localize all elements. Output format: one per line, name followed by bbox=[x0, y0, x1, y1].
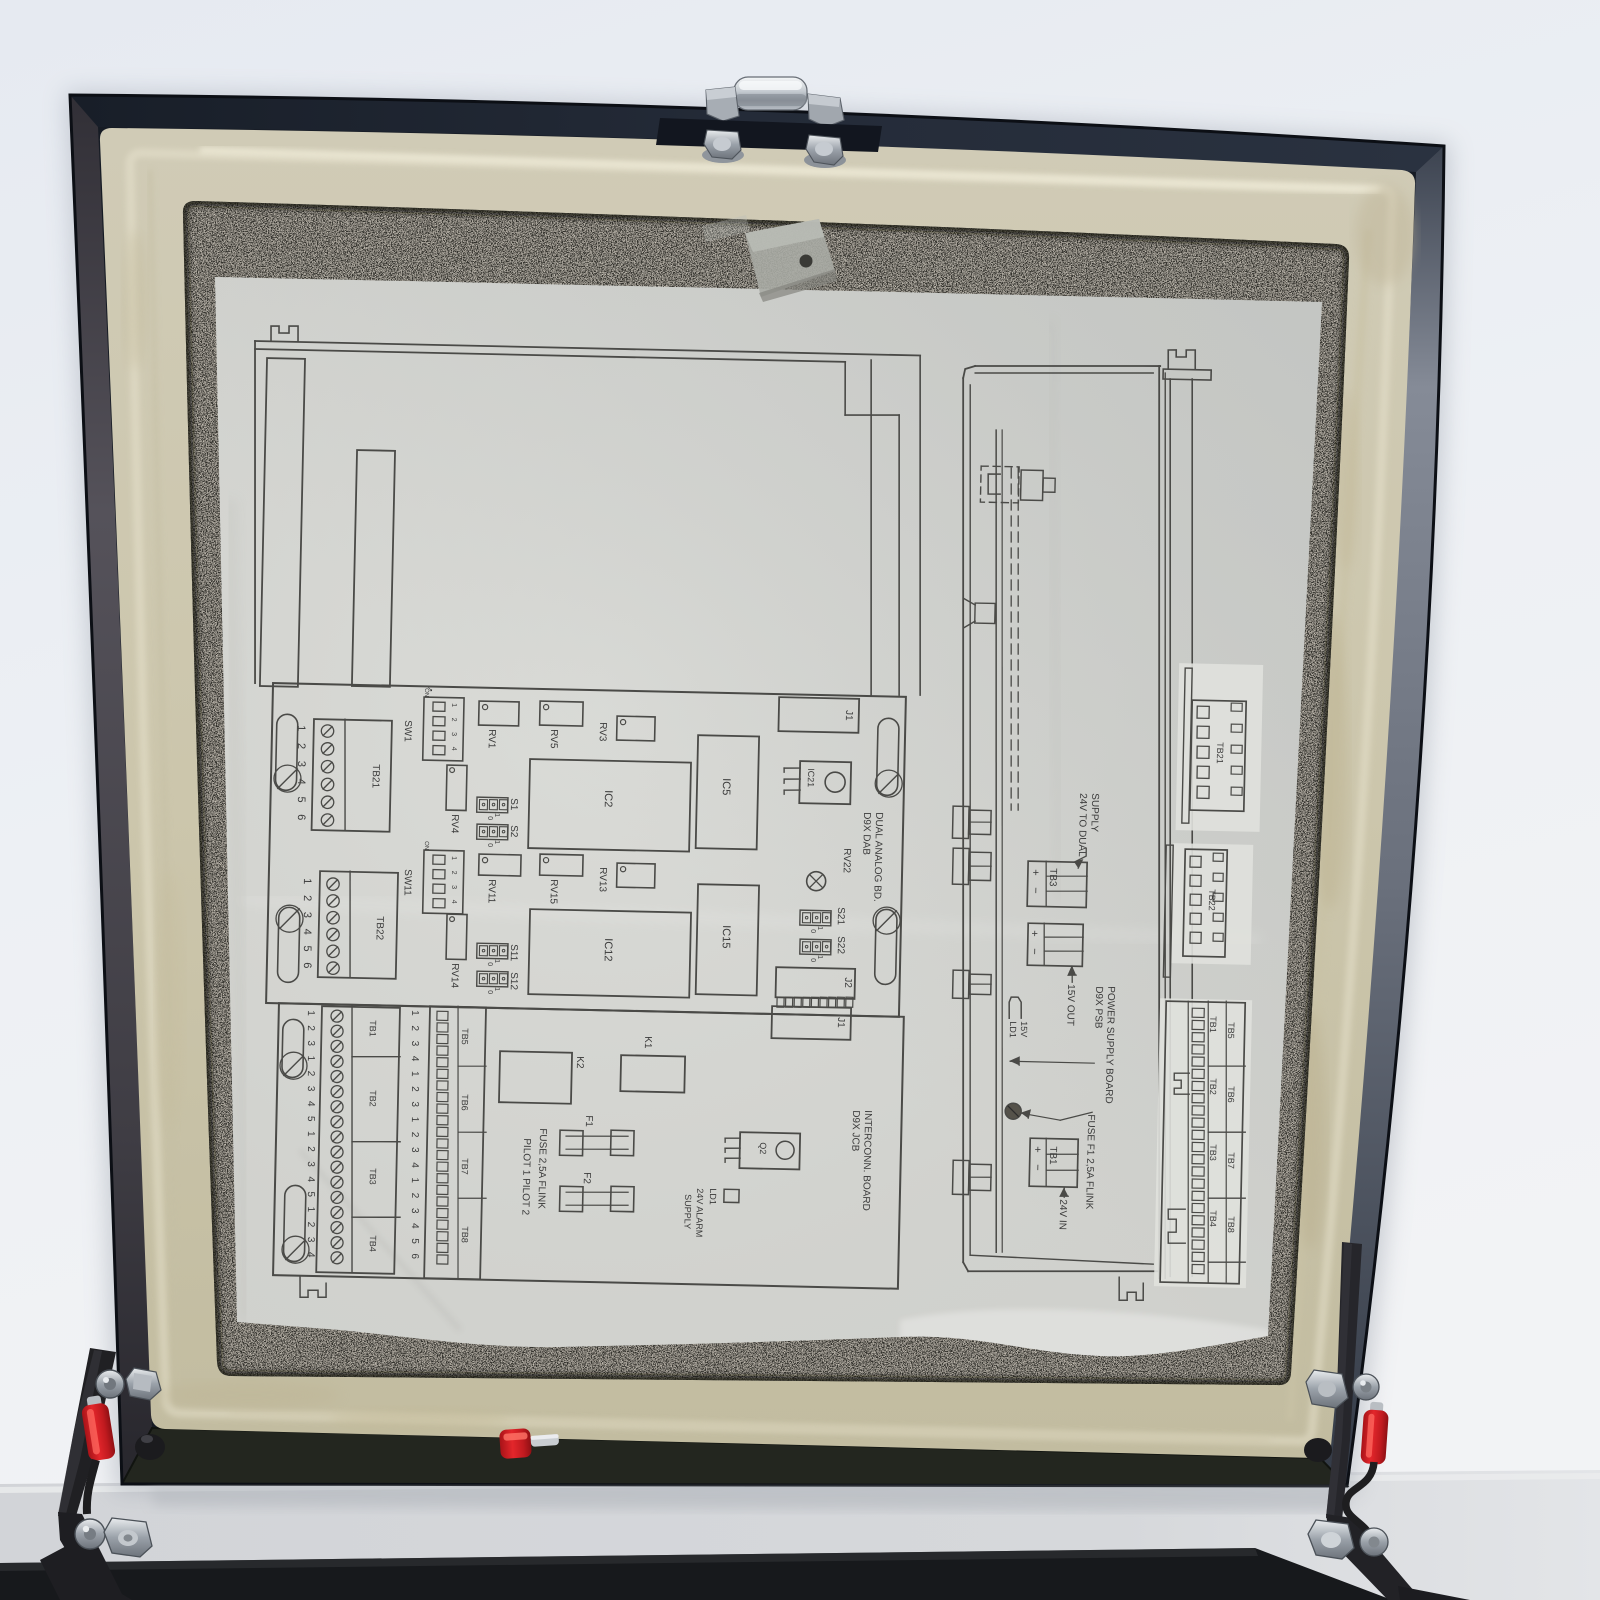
svg-text:−: − bbox=[1031, 1164, 1043, 1171]
svg-text:TB2: TB2 bbox=[1208, 1078, 1218, 1095]
svg-text:J1: J1 bbox=[843, 710, 854, 721]
svg-text:1: 1 bbox=[409, 1177, 420, 1183]
svg-text:SW11: SW11 bbox=[401, 869, 413, 896]
svg-text:TB6: TB6 bbox=[1226, 1086, 1236, 1103]
svg-text:TB21: TB21 bbox=[1215, 742, 1225, 764]
svg-text:F1: F1 bbox=[583, 1115, 594, 1127]
svg-text:3: 3 bbox=[409, 1147, 420, 1153]
svg-text:SUPPLY: SUPPLY bbox=[682, 1194, 693, 1229]
svg-text:TB1: TB1 bbox=[368, 1020, 378, 1037]
svg-text:IC2: IC2 bbox=[602, 790, 614, 807]
svg-text:2: 2 bbox=[305, 1146, 316, 1152]
svg-text:J2: J2 bbox=[842, 977, 853, 988]
svg-text:Q2: Q2 bbox=[758, 1142, 768, 1154]
svg-text:TB7: TB7 bbox=[1226, 1152, 1236, 1169]
svg-text:5: 5 bbox=[409, 1238, 420, 1244]
svg-text:0: 0 bbox=[486, 962, 493, 966]
svg-text:+: + bbox=[1029, 869, 1041, 876]
svg-text:24V ALARM: 24V ALARM bbox=[694, 1188, 705, 1237]
svg-text:TB5: TB5 bbox=[460, 1028, 470, 1045]
svg-text:S1: S1 bbox=[508, 798, 519, 811]
svg-text:2: 2 bbox=[305, 1222, 316, 1228]
svg-text:24V IN: 24V IN bbox=[1057, 1199, 1069, 1230]
svg-text:TB22: TB22 bbox=[373, 916, 385, 941]
svg-text:RV4: RV4 bbox=[449, 814, 460, 834]
svg-text:1: 1 bbox=[409, 1010, 420, 1016]
svg-text:4: 4 bbox=[409, 1056, 420, 1062]
svg-text:6: 6 bbox=[295, 814, 307, 820]
svg-text:FUSE 2,5A FLINK: FUSE 2,5A FLINK bbox=[535, 1128, 548, 1209]
svg-text:6: 6 bbox=[301, 962, 313, 968]
svg-text:RV3: RV3 bbox=[597, 722, 608, 742]
svg-text:2: 2 bbox=[305, 1025, 316, 1031]
svg-text:3: 3 bbox=[409, 1041, 420, 1047]
svg-text:RV5: RV5 bbox=[548, 729, 559, 749]
svg-text:1: 1 bbox=[295, 725, 307, 731]
svg-text:IC5: IC5 bbox=[720, 778, 732, 795]
svg-text:0: 0 bbox=[809, 929, 816, 933]
svg-text:J1: J1 bbox=[835, 1017, 846, 1028]
svg-text:TB1: TB1 bbox=[1208, 1016, 1218, 1033]
svg-text:IC12: IC12 bbox=[602, 938, 615, 962]
svg-text:5: 5 bbox=[305, 1116, 316, 1122]
svg-text:4: 4 bbox=[409, 1223, 420, 1229]
svg-text:5: 5 bbox=[301, 945, 313, 951]
svg-text:LD1: LD1 bbox=[1008, 1021, 1018, 1038]
svg-text:PILOT 1 PILOT 2: PILOT 1 PILOT 2 bbox=[519, 1138, 532, 1216]
svg-text:RV14: RV14 bbox=[449, 963, 461, 989]
svg-text:S12: S12 bbox=[508, 972, 519, 990]
svg-text:TB7: TB7 bbox=[460, 1158, 470, 1175]
svg-text:LD1: LD1 bbox=[708, 1188, 718, 1205]
svg-text:15V OUT: 15V OUT bbox=[1064, 984, 1076, 1026]
svg-text:RV22: RV22 bbox=[841, 848, 853, 874]
svg-text:DUAL ANALOG BD.: DUAL ANALOG BD. bbox=[871, 812, 884, 902]
svg-text:K1: K1 bbox=[642, 1036, 653, 1049]
svg-text:RV1: RV1 bbox=[486, 729, 497, 749]
svg-text:1: 1 bbox=[450, 856, 457, 860]
svg-text:4: 4 bbox=[301, 929, 313, 935]
svg-text:RV11: RV11 bbox=[485, 879, 497, 904]
svg-text:2: 2 bbox=[301, 895, 313, 901]
svg-text:−: − bbox=[1028, 948, 1040, 955]
svg-text:0: 0 bbox=[486, 816, 493, 820]
svg-text:0: 0 bbox=[486, 843, 493, 847]
svg-text:1: 1 bbox=[305, 1206, 316, 1212]
svg-text:IC15: IC15 bbox=[720, 925, 733, 949]
svg-text:TB2: TB2 bbox=[368, 1090, 378, 1107]
svg-text:RV15: RV15 bbox=[547, 879, 559, 905]
svg-text:D9X PSB: D9X PSB bbox=[1092, 986, 1104, 1029]
svg-text:1: 1 bbox=[409, 1117, 420, 1123]
svg-text:3: 3 bbox=[450, 732, 457, 736]
svg-text:TB21: TB21 bbox=[369, 764, 381, 789]
svg-text:TB8: TB8 bbox=[460, 1226, 470, 1243]
svg-text:1: 1 bbox=[816, 926, 823, 930]
svg-text:TB22: TB22 bbox=[1207, 889, 1217, 911]
svg-text:2: 2 bbox=[409, 1025, 420, 1031]
svg-text:2: 2 bbox=[409, 1193, 420, 1199]
svg-text:ON: ON bbox=[423, 841, 429, 850]
svg-text:5: 5 bbox=[295, 796, 307, 802]
svg-text:ON: ON bbox=[423, 688, 429, 697]
svg-text:S22: S22 bbox=[835, 936, 846, 954]
svg-text:1: 1 bbox=[305, 1131, 316, 1137]
svg-text:2: 2 bbox=[450, 718, 457, 722]
svg-text:IC21: IC21 bbox=[806, 768, 816, 787]
svg-text:RV13: RV13 bbox=[597, 867, 609, 893]
svg-text:3: 3 bbox=[305, 1086, 316, 1092]
svg-text:S2: S2 bbox=[508, 825, 519, 838]
svg-text:TB4: TB4 bbox=[1208, 1210, 1218, 1227]
svg-text:S21: S21 bbox=[835, 907, 846, 925]
svg-text:4: 4 bbox=[305, 1101, 316, 1107]
svg-text:6: 6 bbox=[409, 1253, 420, 1259]
svg-text:4: 4 bbox=[305, 1176, 316, 1182]
svg-text:TB1: TB1 bbox=[1047, 1146, 1058, 1165]
svg-text:3: 3 bbox=[305, 1040, 316, 1046]
svg-text:2: 2 bbox=[305, 1071, 316, 1077]
svg-text:1: 1 bbox=[301, 878, 313, 884]
svg-text:D9X DAB: D9X DAB bbox=[860, 812, 872, 855]
svg-text:+: + bbox=[1028, 930, 1040, 937]
svg-text:K2: K2 bbox=[574, 1056, 585, 1069]
svg-text:2: 2 bbox=[409, 1086, 420, 1092]
svg-text:1: 1 bbox=[450, 703, 457, 707]
svg-text:3: 3 bbox=[409, 1208, 420, 1214]
svg-text:3: 3 bbox=[305, 1161, 316, 1167]
svg-text:S11: S11 bbox=[508, 944, 519, 962]
svg-text:TB8: TB8 bbox=[1226, 1216, 1236, 1233]
svg-text:2: 2 bbox=[450, 871, 457, 875]
svg-text:4: 4 bbox=[409, 1162, 420, 1168]
svg-text:SUPPLY: SUPPLY bbox=[1088, 793, 1100, 832]
svg-text:−: − bbox=[1029, 887, 1041, 894]
svg-text:3: 3 bbox=[450, 885, 457, 889]
svg-text:TB3: TB3 bbox=[1047, 868, 1058, 887]
svg-text:SW1: SW1 bbox=[402, 720, 413, 742]
svg-text:0: 0 bbox=[486, 990, 493, 994]
svg-text:15V: 15V bbox=[1019, 1021, 1029, 1037]
svg-text:0: 0 bbox=[809, 958, 816, 962]
svg-text:3: 3 bbox=[409, 1101, 420, 1107]
svg-text:F2: F2 bbox=[581, 1172, 592, 1184]
svg-text:TB3: TB3 bbox=[368, 1168, 378, 1185]
svg-text:TB4: TB4 bbox=[368, 1235, 378, 1252]
svg-text:4: 4 bbox=[450, 900, 457, 904]
svg-text:4: 4 bbox=[450, 747, 457, 751]
svg-text:TB3: TB3 bbox=[1208, 1144, 1218, 1161]
svg-text:FUSE F1 2,5A FLINK: FUSE F1 2,5A FLINK bbox=[1083, 1114, 1096, 1210]
svg-text:D9X JCB: D9X JCB bbox=[849, 1110, 861, 1152]
svg-text:INTERCONN. BOARD: INTERCONN. BOARD bbox=[860, 1110, 873, 1211]
svg-text:+: + bbox=[1031, 1146, 1043, 1153]
svg-text:1: 1 bbox=[305, 1010, 316, 1016]
svg-text:1: 1 bbox=[409, 1071, 420, 1077]
svg-text:2: 2 bbox=[409, 1132, 420, 1138]
svg-text:1: 1 bbox=[493, 959, 500, 963]
svg-text:TB5: TB5 bbox=[1226, 1022, 1236, 1039]
svg-text:TB6: TB6 bbox=[460, 1094, 470, 1111]
